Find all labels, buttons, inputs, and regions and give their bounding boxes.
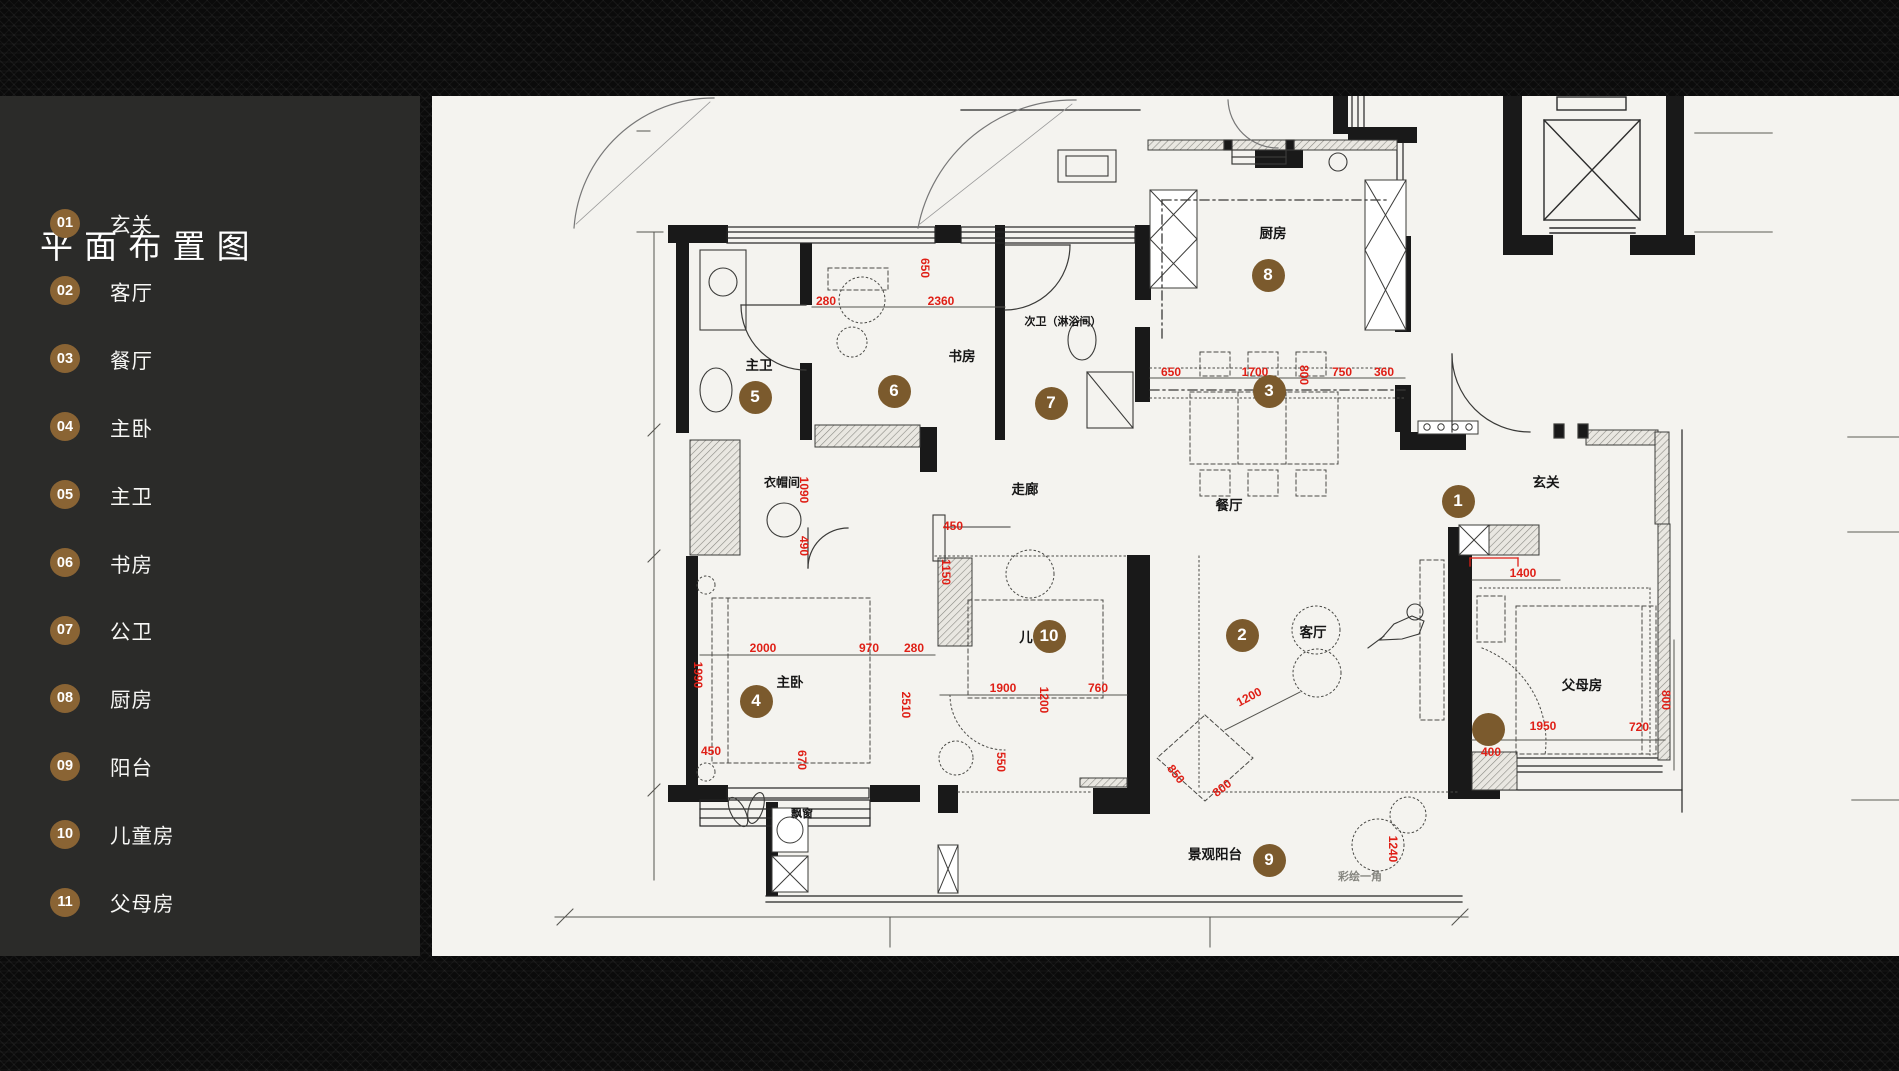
dimension-label: 1900: [990, 681, 1017, 695]
room-label: 书房: [949, 345, 976, 365]
legend-item: 07 公卫: [50, 614, 153, 646]
room-label: 次卫（淋浴间）: [1025, 313, 1102, 329]
dimension-label: 670: [795, 750, 809, 770]
dimension-label: 800: [1297, 365, 1311, 385]
slide: 平 面 布 置 图 01 玄关 02 客厅 03 餐厅 04 主卧 05 主卫 …: [0, 0, 1899, 1071]
legend-item-badge: 07: [50, 616, 80, 645]
dimension-label: 1950: [1530, 719, 1557, 733]
plan-marker: 10: [1033, 620, 1066, 653]
legend-item: 06 书房: [50, 547, 153, 579]
floor-plan-panel: 12345678910主卫书房次卫（淋浴间）厨房玄关餐厅客厅走廊衣帽间主卧儿父母…: [432, 96, 1899, 956]
legend-item: 02 客厅: [50, 275, 153, 307]
dimension-label: 280: [904, 641, 924, 655]
room-label: 玄关: [1533, 471, 1560, 491]
dimension-label: 1150: [939, 559, 953, 585]
legend-sidebar: 平 面 布 置 图 01 玄关 02 客厅 03 餐厅 04 主卧 05 主卫 …: [0, 96, 420, 956]
dimension-label: 760: [1088, 681, 1108, 695]
legend-item-badge: 03: [50, 344, 80, 373]
room-label: 景观阳台: [1188, 843, 1242, 863]
room-label: 客厅: [1300, 621, 1327, 641]
legend-item: 04 主卧: [50, 411, 153, 443]
legend-item-badge: 06: [50, 548, 80, 577]
plan-marker: 3: [1253, 375, 1286, 408]
dimension-label: 490: [797, 536, 811, 556]
dimension-label: 2000: [750, 641, 777, 655]
room-label: 主卫: [746, 354, 773, 374]
legend-item: 03 餐厅: [50, 343, 153, 375]
dimension-label: 970: [859, 641, 879, 655]
dimension-label: 800: [1659, 690, 1673, 710]
plan-marker: 7: [1035, 387, 1068, 420]
plan-marker: [1472, 713, 1505, 746]
legend-item-badge: 05: [50, 480, 80, 509]
red-cabinet-mark: [1470, 558, 1518, 566]
floor-plan-drawing: [432, 96, 1899, 956]
dimension-label: 1990: [691, 662, 705, 689]
room-label: 彩绘一角: [1338, 868, 1382, 884]
dimension-label: 280: [816, 294, 836, 308]
legend-item-badge: 02: [50, 276, 80, 305]
room-label: 主卧: [777, 671, 804, 691]
plan-marker: 8: [1252, 259, 1285, 292]
legend-item: 05 主卫: [50, 479, 153, 511]
dimension-label: 1400: [1510, 566, 1537, 580]
dimension-label: 750: [1332, 365, 1352, 379]
plan-marker: 2: [1226, 619, 1259, 652]
sidebar-item-label: 主卧: [110, 412, 153, 442]
dimension-label: 720: [1629, 720, 1649, 734]
sidebar-item-label: 客厅: [110, 276, 153, 306]
plan-marker: 4: [740, 685, 773, 718]
legend-item-badge: 11: [50, 888, 80, 917]
legend-item: 09 阳台: [50, 750, 153, 782]
legend-item: 11 父母房: [50, 886, 175, 918]
sidebar-item-label: 餐厅: [110, 344, 153, 374]
sidebar-item-label: 阳台: [110, 751, 153, 781]
sidebar-item-label: 父母房: [110, 887, 175, 917]
legend-item: 08 厨房: [50, 682, 153, 714]
sidebar-item-label: 公卫: [110, 615, 153, 645]
legend-item-badge: 04: [50, 412, 80, 441]
dimension-label: 2510: [899, 692, 913, 719]
dimension-label: 450: [701, 744, 721, 758]
dimension-label: 650: [1161, 365, 1181, 379]
dimension-label: 450: [943, 519, 963, 533]
dimension-label: 400: [1481, 745, 1501, 759]
sidebar-item-label: 主卫: [110, 480, 153, 510]
room-label: 儿: [1019, 626, 1033, 646]
elevator-shaft: [1503, 96, 1772, 255]
room-label: 厨房: [1260, 222, 1287, 242]
dimension-label: 550: [994, 752, 1008, 772]
legend-item-badge: 10: [50, 820, 80, 849]
dimension-label: 360: [1374, 365, 1394, 379]
dimension-label: 1200: [1037, 687, 1051, 714]
room-label: 父母房: [1562, 674, 1603, 694]
room-label: 餐厅: [1216, 494, 1243, 514]
dimension-lines: [555, 131, 1899, 947]
sidebar-item-label: 儿童房: [110, 819, 175, 849]
legend-item-badge: 09: [50, 752, 80, 781]
room-label: 衣帽间: [764, 474, 800, 491]
legend-item: 01 玄关: [50, 207, 153, 239]
sidebar-item-label: 书房: [110, 548, 153, 578]
plan-marker: 1: [1442, 485, 1475, 518]
dimension-label: 1240: [1386, 836, 1400, 863]
legend-item: 10 儿童房: [50, 818, 175, 850]
plan-marker: 6: [878, 375, 911, 408]
dimension-label: 2360: [928, 294, 955, 308]
legend-item-badge: 08: [50, 684, 80, 713]
dimension-label: 650: [918, 258, 932, 278]
room-label: 走廊: [1012, 478, 1039, 498]
room-label: 飘窗: [791, 805, 813, 821]
plan-marker: 9: [1253, 844, 1286, 877]
sidebar-item-label: 厨房: [110, 683, 153, 713]
legend-item-badge: 01: [50, 209, 80, 238]
sidebar-item-label: 玄关: [110, 208, 153, 238]
plan-marker: 5: [739, 381, 772, 414]
